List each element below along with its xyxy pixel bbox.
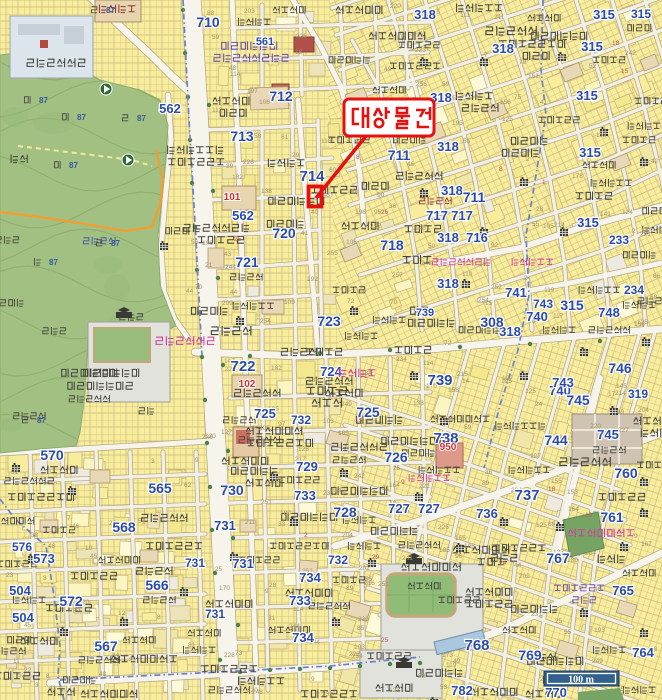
svg-text:196: 196 — [355, 209, 366, 216]
svg-text:55: 55 — [532, 221, 540, 228]
svg-text:5: 5 — [142, 519, 146, 526]
svg-text:56: 56 — [191, 239, 199, 246]
svg-text:24: 24 — [535, 401, 543, 408]
svg-text:242: 242 — [625, 50, 636, 57]
svg-text:209: 209 — [222, 300, 233, 307]
svg-text:68: 68 — [351, 189, 359, 196]
svg-text:737: 737 — [514, 487, 539, 504]
svg-text:950: 950 — [440, 442, 457, 453]
svg-text:257: 257 — [392, 272, 403, 279]
svg-text:178: 178 — [572, 173, 583, 180]
svg-text:70: 70 — [195, 284, 203, 291]
svg-text:125: 125 — [502, 116, 513, 123]
svg-text:713: 713 — [230, 128, 254, 144]
svg-text:252: 252 — [491, 284, 502, 291]
svg-text:173: 173 — [442, 652, 453, 659]
svg-text:12: 12 — [118, 610, 126, 617]
svg-text:182: 182 — [232, 174, 243, 181]
svg-text:87: 87 — [106, 6, 115, 15]
svg-text:248: 248 — [252, 689, 263, 696]
svg-text:197: 197 — [502, 375, 513, 382]
svg-text:87: 87 — [49, 258, 58, 267]
svg-text:24: 24 — [17, 562, 25, 569]
svg-text:51: 51 — [11, 469, 19, 476]
svg-text:169: 169 — [338, 430, 349, 437]
svg-text:576: 576 — [12, 540, 32, 554]
svg-text:197: 197 — [247, 88, 258, 95]
svg-text:318: 318 — [414, 7, 436, 22]
svg-text:743: 743 — [552, 375, 574, 390]
svg-text:138: 138 — [413, 400, 424, 407]
svg-text:28: 28 — [536, 206, 544, 213]
svg-text:138: 138 — [261, 188, 272, 195]
svg-text:18: 18 — [612, 40, 620, 47]
svg-text:211: 211 — [245, 519, 256, 526]
svg-text:114: 114 — [356, 288, 367, 295]
svg-text:111: 111 — [460, 12, 470, 19]
svg-text:736: 736 — [476, 506, 498, 521]
svg-text:87: 87 — [433, 414, 441, 421]
svg-text:723: 723 — [317, 313, 341, 329]
svg-text:92: 92 — [491, 242, 499, 249]
svg-text:731: 731 — [185, 556, 205, 570]
svg-text:714: 714 — [299, 168, 325, 185]
svg-text:9: 9 — [265, 588, 269, 595]
svg-text:15: 15 — [485, 300, 493, 307]
svg-text:114: 114 — [230, 71, 241, 78]
svg-text:100 m: 100 m — [568, 675, 595, 686]
svg-text:741: 741 — [505, 285, 527, 300]
svg-text:146: 146 — [443, 416, 454, 423]
svg-text:7: 7 — [67, 515, 71, 522]
svg-text:59: 59 — [442, 81, 450, 88]
svg-text:721: 721 — [235, 254, 259, 270]
svg-text:44: 44 — [230, 289, 238, 296]
svg-text:2: 2 — [526, 156, 530, 163]
svg-text:18: 18 — [295, 49, 303, 56]
svg-text:315: 315 — [581, 39, 603, 54]
svg-text:717: 717 — [426, 208, 448, 223]
svg-text:255: 255 — [327, 250, 338, 257]
svg-text:87: 87 — [77, 113, 86, 122]
svg-text:68: 68 — [650, 294, 658, 301]
svg-text:164: 164 — [568, 506, 579, 513]
svg-text:46: 46 — [72, 523, 80, 530]
svg-text:44: 44 — [186, 288, 194, 295]
svg-text:230: 230 — [358, 616, 369, 623]
svg-text:566: 566 — [145, 577, 169, 593]
svg-text:722: 722 — [230, 358, 255, 375]
svg-text:58: 58 — [254, 133, 262, 140]
svg-text:18: 18 — [548, 486, 556, 493]
svg-text:89: 89 — [346, 585, 354, 592]
svg-text:565: 565 — [148, 480, 172, 496]
svg-text:165: 165 — [455, 535, 466, 542]
svg-text:69: 69 — [548, 521, 556, 528]
svg-text:87: 87 — [69, 161, 78, 170]
svg-text:710: 710 — [196, 14, 220, 30]
svg-text:561: 561 — [256, 36, 274, 48]
svg-text:97: 97 — [278, 421, 286, 428]
svg-text:744: 744 — [544, 432, 568, 448]
svg-text:7: 7 — [484, 52, 488, 59]
svg-text:39: 39 — [479, 261, 487, 268]
svg-text:254: 254 — [352, 653, 363, 660]
svg-text:315: 315 — [560, 297, 584, 313]
svg-text:68: 68 — [276, 477, 284, 484]
svg-text:215: 215 — [457, 371, 468, 378]
svg-text:25: 25 — [234, 236, 242, 243]
svg-text:73: 73 — [235, 650, 243, 657]
svg-text:221: 221 — [419, 483, 430, 490]
svg-text:15: 15 — [621, 68, 629, 75]
svg-text:117: 117 — [553, 313, 564, 320]
svg-text:720: 720 — [272, 225, 296, 241]
svg-text:25: 25 — [393, 465, 401, 472]
svg-text:562: 562 — [159, 101, 181, 116]
svg-text:732: 732 — [291, 413, 311, 427]
svg-text:69: 69 — [218, 666, 226, 673]
svg-text:764: 764 — [632, 645, 654, 660]
svg-text:242: 242 — [354, 473, 365, 480]
svg-text:716: 716 — [466, 230, 488, 245]
svg-text:246: 246 — [556, 54, 567, 61]
svg-text:42: 42 — [651, 158, 659, 165]
svg-text:116: 116 — [539, 329, 550, 336]
svg-text:203: 203 — [244, 8, 255, 15]
svg-text:127: 127 — [530, 453, 541, 460]
svg-text:9: 9 — [401, 479, 405, 486]
svg-text:711: 711 — [388, 147, 411, 163]
svg-text:8: 8 — [499, 166, 503, 173]
svg-text:767: 767 — [546, 550, 570, 566]
svg-text:231: 231 — [322, 691, 333, 698]
svg-text:69: 69 — [617, 409, 625, 416]
svg-text:315: 315 — [593, 7, 615, 22]
svg-text:23: 23 — [6, 572, 14, 579]
svg-text:192: 192 — [307, 276, 318, 283]
svg-text:196: 196 — [202, 240, 213, 247]
svg-text:17: 17 — [491, 593, 499, 600]
svg-text:223: 223 — [415, 47, 426, 54]
svg-text:79: 79 — [519, 59, 527, 66]
svg-text:114: 114 — [423, 360, 434, 367]
svg-text:170: 170 — [219, 585, 230, 592]
svg-text:141: 141 — [600, 211, 611, 218]
svg-text:731: 731 — [205, 607, 225, 621]
svg-text:731: 731 — [232, 556, 254, 571]
svg-text:28: 28 — [418, 673, 426, 680]
svg-text:49: 49 — [453, 658, 461, 665]
svg-text:25: 25 — [555, 618, 563, 625]
svg-text:748: 748 — [598, 305, 620, 320]
svg-text:81: 81 — [188, 642, 196, 649]
svg-text:768: 768 — [464, 637, 489, 654]
svg-text:75: 75 — [514, 94, 522, 101]
svg-text:234: 234 — [396, 356, 407, 363]
svg-text:251: 251 — [378, 581, 389, 588]
svg-text:195: 195 — [452, 120, 463, 127]
svg-text:182: 182 — [271, 365, 282, 372]
svg-text:782: 782 — [451, 683, 473, 698]
svg-text:562: 562 — [232, 208, 254, 223]
svg-text:248: 248 — [421, 260, 432, 267]
svg-text:87: 87 — [137, 114, 146, 123]
svg-text:769: 769 — [518, 647, 542, 663]
svg-text:568: 568 — [112, 519, 136, 535]
svg-text:26: 26 — [381, 209, 389, 216]
svg-text:746: 746 — [608, 360, 632, 376]
svg-text:11: 11 — [13, 658, 20, 665]
svg-text:41: 41 — [49, 685, 57, 692]
svg-text:161: 161 — [528, 73, 539, 80]
svg-text:567: 567 — [94, 638, 118, 654]
svg-text:52: 52 — [589, 63, 597, 70]
svg-text:103: 103 — [323, 418, 334, 425]
svg-text:244: 244 — [289, 623, 300, 630]
svg-text:31: 31 — [268, 615, 276, 622]
svg-text:226: 226 — [438, 524, 449, 531]
svg-text:127: 127 — [221, 429, 232, 436]
svg-text:41: 41 — [540, 99, 548, 106]
svg-text:122: 122 — [389, 687, 400, 694]
svg-text:238: 238 — [323, 490, 334, 497]
svg-text:2: 2 — [632, 228, 636, 235]
svg-text:231: 231 — [531, 611, 542, 618]
svg-text:55: 55 — [463, 138, 471, 145]
svg-text:729: 729 — [296, 459, 318, 474]
svg-text:249: 249 — [592, 658, 603, 665]
svg-text:50: 50 — [428, 243, 436, 250]
svg-text:214: 214 — [554, 222, 565, 229]
svg-text:38: 38 — [31, 532, 39, 539]
svg-text:315: 315 — [579, 145, 601, 160]
svg-text:228: 228 — [224, 652, 235, 659]
svg-text:315: 315 — [577, 215, 599, 230]
svg-text:185: 185 — [439, 547, 450, 554]
svg-text:214: 214 — [615, 390, 626, 397]
svg-text:319: 319 — [628, 387, 648, 401]
svg-text:44: 44 — [514, 562, 522, 569]
svg-text:734: 734 — [292, 630, 314, 645]
svg-text:105: 105 — [543, 223, 554, 230]
svg-text:718: 718 — [380, 237, 404, 253]
svg-text:25: 25 — [215, 566, 223, 573]
svg-text:765: 765 — [612, 583, 634, 598]
svg-text:770: 770 — [545, 685, 567, 700]
svg-text:112: 112 — [596, 132, 607, 139]
svg-text:61: 61 — [281, 134, 289, 141]
svg-text:318: 318 — [437, 276, 459, 291]
svg-text:573: 573 — [33, 551, 55, 566]
svg-text:732: 732 — [328, 553, 348, 567]
svg-text:40: 40 — [311, 209, 319, 216]
svg-text:216: 216 — [364, 580, 375, 587]
svg-text:9: 9 — [634, 533, 638, 540]
svg-text:220: 220 — [390, 3, 401, 10]
svg-text:221: 221 — [640, 231, 651, 238]
svg-text:4: 4 — [129, 655, 133, 662]
svg-text:59: 59 — [212, 34, 220, 41]
svg-text:118: 118 — [321, 138, 332, 145]
svg-text:241: 241 — [402, 555, 413, 562]
svg-text:153: 153 — [567, 489, 578, 496]
svg-text:214: 214 — [533, 14, 544, 21]
svg-text:10: 10 — [585, 512, 593, 519]
svg-text:125: 125 — [525, 388, 536, 395]
svg-text:128: 128 — [298, 446, 309, 453]
svg-text:712: 712 — [269, 88, 293, 104]
svg-text:234: 234 — [624, 283, 644, 297]
svg-text:8: 8 — [46, 673, 50, 680]
svg-text:24: 24 — [499, 560, 507, 567]
svg-text:745: 745 — [566, 392, 590, 408]
svg-text:20: 20 — [82, 599, 90, 606]
svg-text:155: 155 — [551, 478, 562, 485]
svg-text:87: 87 — [111, 239, 120, 248]
svg-text:109: 109 — [284, 299, 295, 306]
svg-text:318: 318 — [492, 41, 514, 56]
svg-text:227: 227 — [618, 427, 629, 434]
svg-text:739: 739 — [416, 307, 434, 319]
svg-text:2: 2 — [524, 275, 528, 282]
svg-text:3: 3 — [43, 575, 47, 582]
svg-text:210: 210 — [570, 550, 581, 557]
svg-text:29: 29 — [372, 554, 380, 561]
svg-text:124: 124 — [622, 209, 633, 216]
svg-text:101: 101 — [224, 192, 241, 203]
svg-text:256: 256 — [416, 81, 427, 88]
svg-text:85: 85 — [357, 625, 365, 632]
svg-text:70: 70 — [390, 299, 398, 306]
svg-text:113: 113 — [260, 392, 271, 399]
svg-text:59: 59 — [464, 424, 472, 431]
svg-text:79: 79 — [361, 542, 369, 549]
svg-text:125: 125 — [536, 522, 547, 529]
svg-text:29: 29 — [292, 152, 300, 159]
svg-text:36: 36 — [389, 203, 397, 210]
svg-text:202: 202 — [359, 565, 370, 572]
svg-text:48: 48 — [48, 543, 56, 550]
svg-text:62: 62 — [184, 482, 192, 489]
svg-text:725: 725 — [356, 404, 380, 420]
svg-text:730: 730 — [220, 482, 244, 498]
svg-text:9: 9 — [311, 676, 315, 683]
svg-text:3: 3 — [151, 458, 155, 465]
svg-text:48: 48 — [594, 586, 602, 593]
svg-text:55: 55 — [564, 629, 572, 636]
svg-text:45: 45 — [90, 553, 98, 560]
svg-text:149: 149 — [334, 487, 345, 494]
svg-text:1: 1 — [542, 179, 546, 186]
svg-text:36: 36 — [485, 469, 493, 476]
svg-text:156: 156 — [500, 99, 511, 106]
svg-text:202: 202 — [519, 573, 530, 580]
svg-text:8: 8 — [356, 154, 360, 161]
svg-text:318: 318 — [437, 139, 459, 154]
svg-text:49: 49 — [384, 66, 392, 73]
svg-text:90: 90 — [377, 192, 385, 199]
svg-text:198: 198 — [464, 543, 475, 550]
svg-text:14: 14 — [462, 378, 470, 385]
svg-text:711: 711 — [463, 189, 486, 205]
svg-text:72: 72 — [347, 298, 355, 305]
svg-text:89: 89 — [482, 480, 490, 487]
svg-text:43: 43 — [224, 251, 232, 258]
svg-text:66: 66 — [653, 273, 661, 280]
svg-text:211: 211 — [494, 14, 505, 21]
svg-text:205: 205 — [259, 425, 270, 432]
svg-text:146: 146 — [415, 225, 426, 232]
svg-text:72: 72 — [444, 340, 452, 347]
svg-text:727: 727 — [388, 501, 410, 516]
svg-text:110: 110 — [462, 271, 473, 278]
svg-text:41: 41 — [301, 230, 309, 237]
svg-text:745: 745 — [597, 427, 619, 442]
svg-text:204: 204 — [638, 407, 649, 414]
svg-text:572: 572 — [59, 593, 83, 609]
svg-text:2: 2 — [304, 532, 308, 539]
svg-text:318: 318 — [441, 183, 463, 198]
svg-text:3: 3 — [35, 682, 39, 689]
svg-text:10: 10 — [85, 545, 93, 552]
svg-text:760: 760 — [614, 465, 638, 481]
svg-text:119: 119 — [544, 287, 555, 294]
svg-text:318: 318 — [437, 230, 459, 245]
svg-text:717: 717 — [451, 208, 473, 223]
svg-text:21: 21 — [205, 262, 213, 269]
svg-text:17: 17 — [608, 391, 616, 398]
svg-text:315: 315 — [576, 88, 598, 103]
svg-text:570: 570 — [40, 447, 64, 463]
svg-text:504: 504 — [9, 583, 31, 598]
svg-text:315: 315 — [631, 7, 651, 21]
svg-text:25: 25 — [381, 637, 389, 644]
svg-text:743: 743 — [533, 297, 553, 311]
svg-text:725: 725 — [254, 406, 276, 421]
svg-text:228: 228 — [243, 159, 254, 166]
svg-text:740: 740 — [526, 309, 548, 324]
svg-text:87: 87 — [39, 96, 48, 105]
svg-text:731: 731 — [214, 518, 236, 533]
svg-text:204: 204 — [342, 532, 353, 539]
svg-text:102: 102 — [239, 379, 256, 390]
svg-text:106: 106 — [346, 239, 357, 246]
svg-text:251: 251 — [261, 499, 272, 506]
svg-text:108: 108 — [634, 321, 645, 328]
svg-text:728: 728 — [333, 504, 357, 520]
svg-text:87: 87 — [37, 416, 46, 425]
svg-text:48: 48 — [99, 671, 107, 678]
svg-text:252: 252 — [370, 223, 381, 230]
svg-text:727: 727 — [418, 501, 440, 516]
svg-text:733: 733 — [289, 593, 311, 608]
svg-text:233: 233 — [511, 607, 522, 614]
svg-text:8: 8 — [157, 614, 161, 621]
svg-text:167: 167 — [641, 541, 652, 548]
svg-text:103: 103 — [354, 644, 365, 651]
svg-text:164: 164 — [389, 482, 400, 489]
svg-text:33: 33 — [278, 521, 286, 528]
svg-text:726: 726 — [384, 449, 408, 465]
svg-text:225: 225 — [296, 33, 307, 40]
svg-text:8: 8 — [338, 661, 342, 668]
svg-text:96: 96 — [455, 553, 463, 560]
svg-text:112: 112 — [212, 107, 223, 114]
svg-text:249: 249 — [341, 401, 352, 408]
svg-text:739: 739 — [427, 372, 452, 389]
svg-text:193: 193 — [594, 627, 605, 634]
